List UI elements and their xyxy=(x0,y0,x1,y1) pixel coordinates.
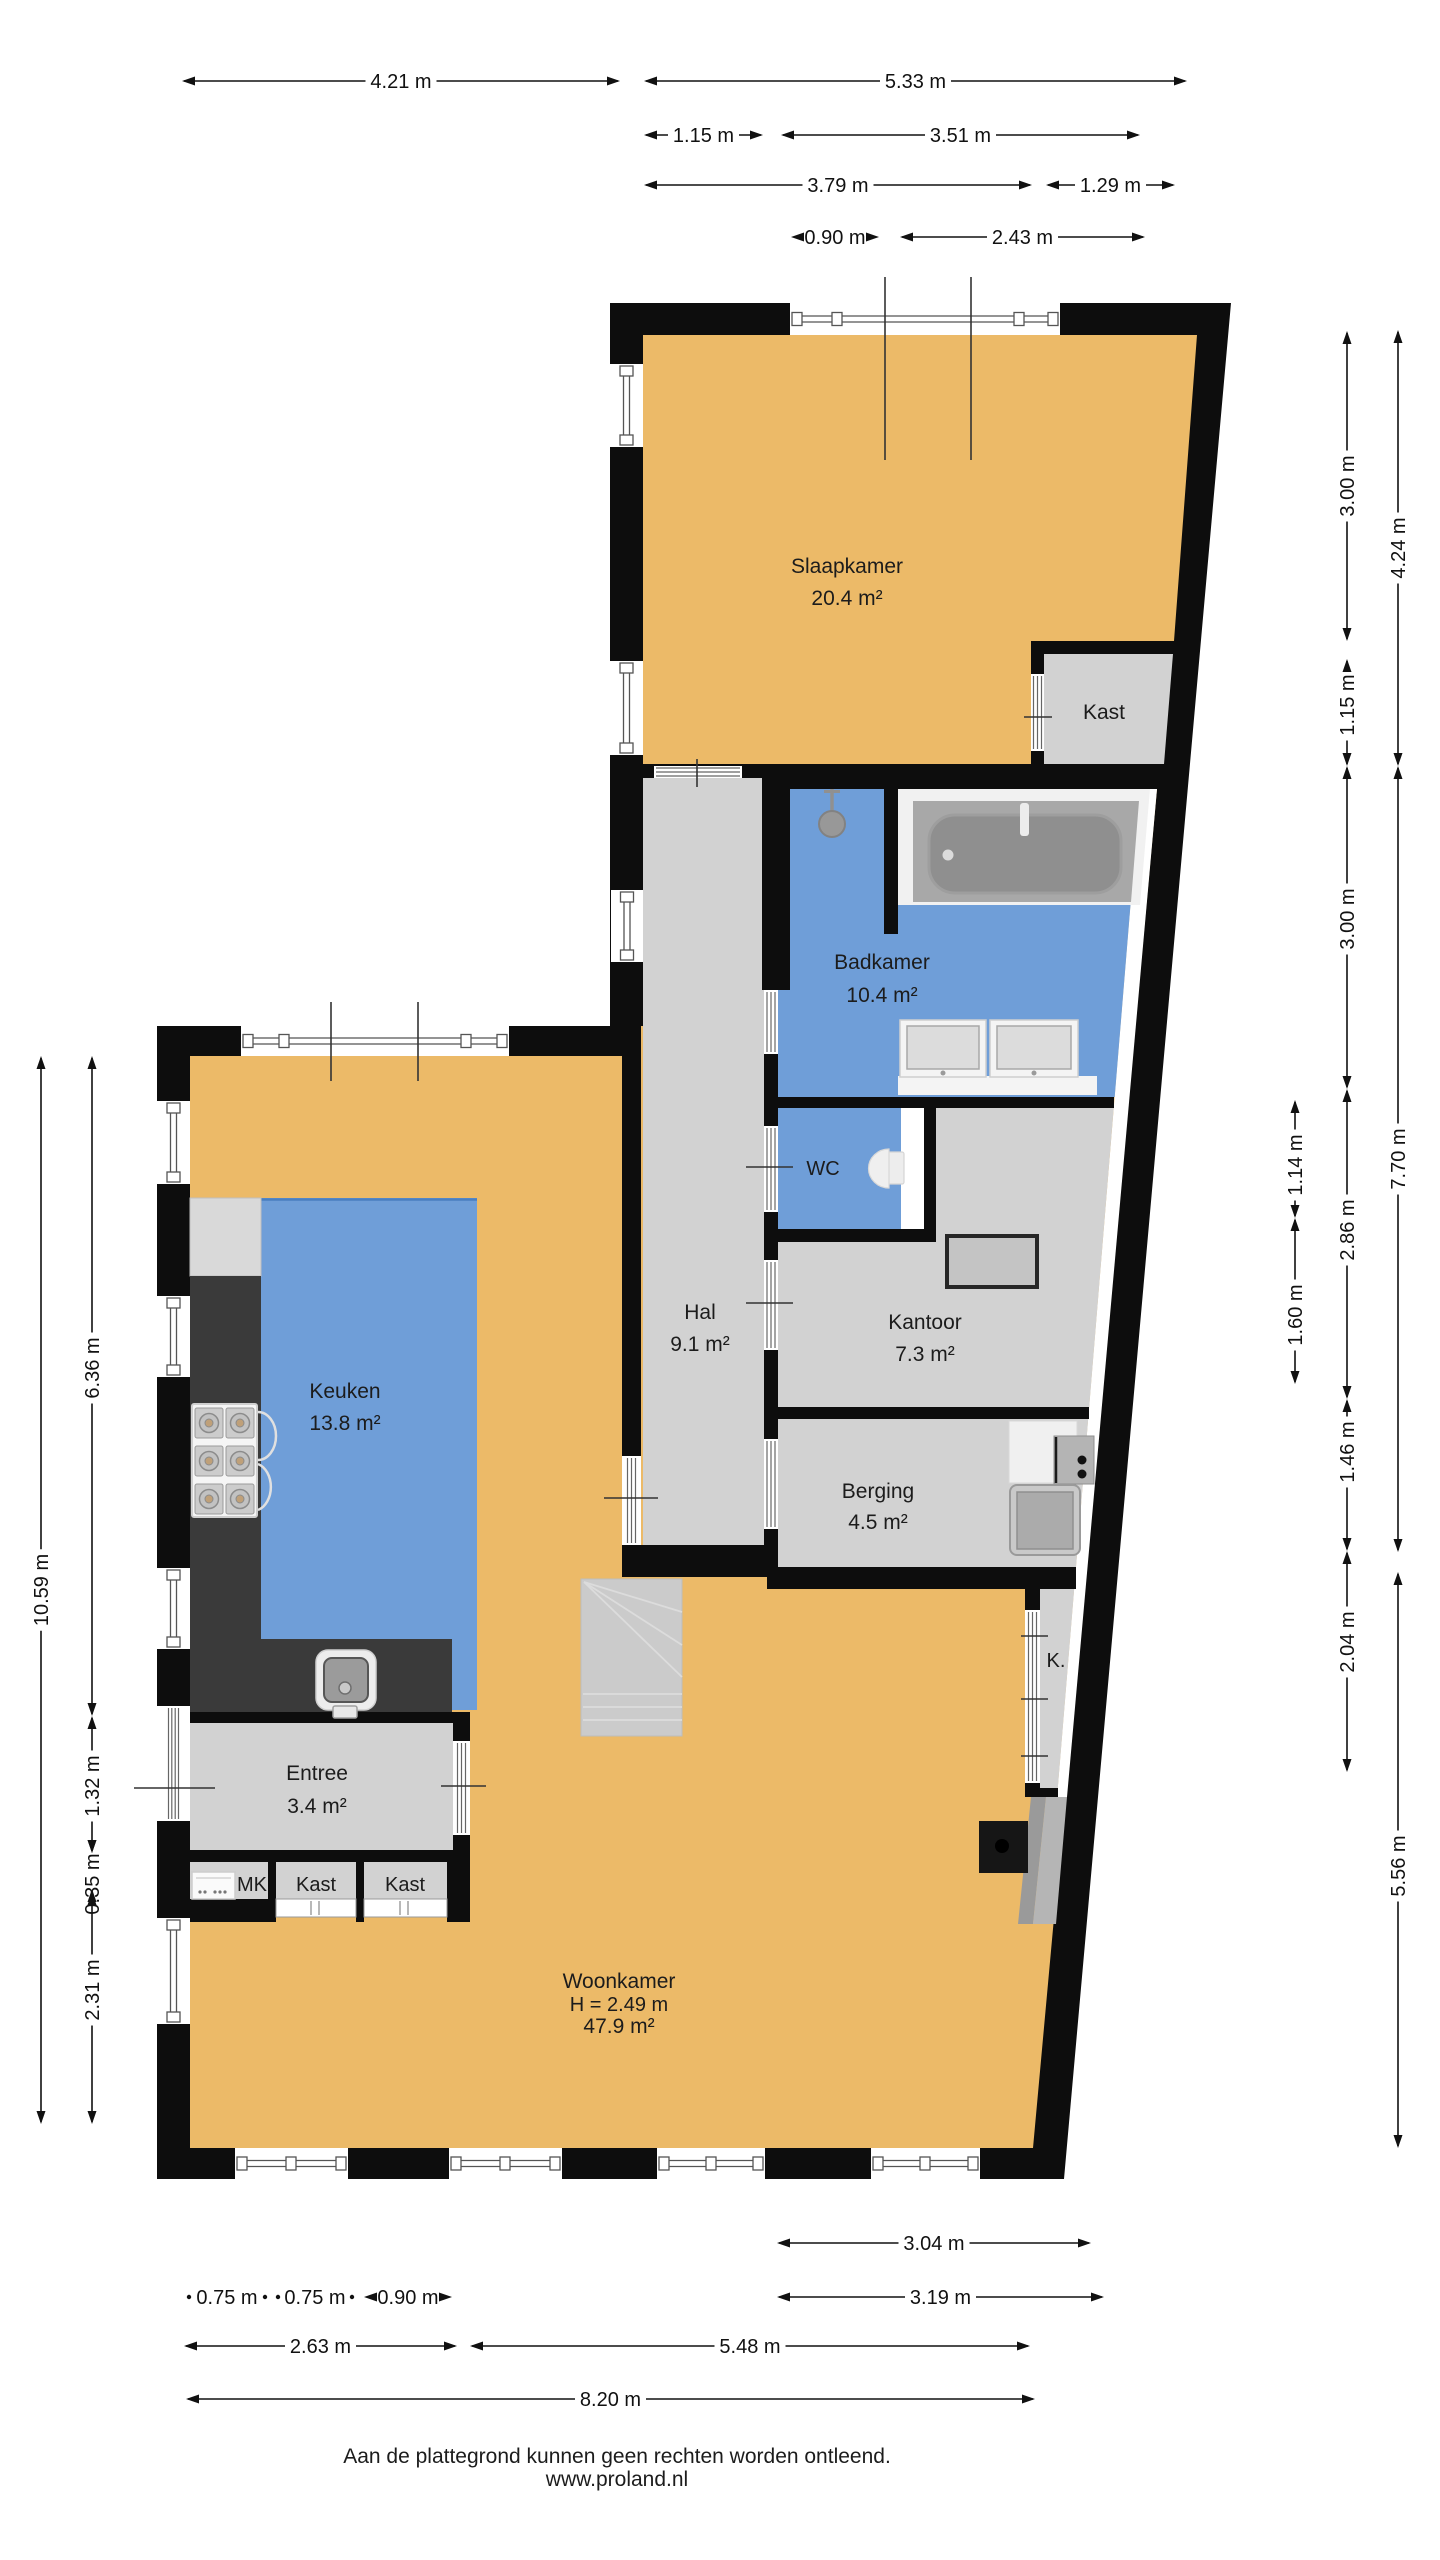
svg-text:20.4 m²: 20.4 m² xyxy=(811,587,882,610)
svg-text:3.04 m: 3.04 m xyxy=(903,2233,964,2255)
svg-text:Kast: Kast xyxy=(296,1874,336,1896)
svg-text:Slaapkamer: Slaapkamer xyxy=(791,555,903,578)
svg-text:5.56 m: 5.56 m xyxy=(1388,1835,1410,1896)
svg-text:4.21 m: 4.21 m xyxy=(370,71,431,93)
svg-text:3.00 m: 3.00 m xyxy=(1337,455,1359,516)
svg-text:5.33 m: 5.33 m xyxy=(885,71,946,93)
svg-text:7.70 m: 7.70 m xyxy=(1388,1128,1410,1189)
svg-text:Aan de plattegrond kunnen geen: Aan de plattegrond kunnen geen rechten w… xyxy=(343,2445,891,2468)
svg-text:2.43 m: 2.43 m xyxy=(992,227,1053,249)
svg-text:Badkamer: Badkamer xyxy=(834,951,930,974)
svg-text:H = 2.49 m: H = 2.49 m xyxy=(570,1994,668,2016)
svg-text:1.14 m: 1.14 m xyxy=(1285,1134,1307,1195)
svg-text:1.60 m: 1.60 m xyxy=(1285,1284,1307,1345)
svg-text:5.48 m: 5.48 m xyxy=(719,2336,780,2358)
svg-text:Kast: Kast xyxy=(385,1874,425,1896)
svg-text:10.59 m: 10.59 m xyxy=(31,1554,53,1626)
svg-text:0.75 m: 0.75 m xyxy=(284,2287,345,2309)
svg-text:MK: MK xyxy=(237,1874,268,1896)
svg-text:0.90 m: 0.90 m xyxy=(377,2287,438,2309)
svg-text:2.63 m: 2.63 m xyxy=(290,2336,351,2358)
svg-text:Berging: Berging xyxy=(842,1480,914,1503)
svg-text:3.51 m: 3.51 m xyxy=(930,125,991,147)
svg-text:K.: K. xyxy=(1047,1650,1066,1672)
svg-text:Keuken: Keuken xyxy=(309,1380,380,1403)
svg-text:6.36 m: 6.36 m xyxy=(82,1337,104,1398)
svg-text:1.32 m: 1.32 m xyxy=(82,1755,104,1816)
svg-text:Hal: Hal xyxy=(684,1301,716,1324)
svg-text:1.15 m: 1.15 m xyxy=(673,125,734,147)
svg-text:www.proland.nl: www.proland.nl xyxy=(545,2468,688,2491)
svg-text:10.4 m²: 10.4 m² xyxy=(846,984,917,1007)
svg-text:3.19 m: 3.19 m xyxy=(910,2287,971,2309)
svg-text:2.31 m: 2.31 m xyxy=(82,1959,104,2020)
svg-text:1.29 m: 1.29 m xyxy=(1080,175,1141,197)
svg-text:0.35 m: 0.35 m xyxy=(82,1853,104,1914)
svg-text:7.3 m²: 7.3 m² xyxy=(895,1343,955,1366)
svg-text:Woonkamer: Woonkamer xyxy=(563,1970,676,1993)
svg-text:Entree: Entree xyxy=(286,1762,348,1785)
svg-text:0.75 m: 0.75 m xyxy=(196,2287,257,2309)
svg-text:3.00 m: 3.00 m xyxy=(1337,888,1359,949)
svg-text:3.4 m²: 3.4 m² xyxy=(287,1795,347,1818)
svg-text:4.24 m: 4.24 m xyxy=(1388,517,1410,578)
svg-text:3.79 m: 3.79 m xyxy=(807,175,868,197)
svg-text:WC: WC xyxy=(806,1158,839,1180)
svg-text:9.1 m²: 9.1 m² xyxy=(670,1333,730,1356)
svg-text:Kast: Kast xyxy=(1083,701,1125,724)
svg-text:47.9 m²: 47.9 m² xyxy=(583,2015,654,2038)
svg-text:8.20 m: 8.20 m xyxy=(580,2389,641,2411)
svg-text:1.46 m: 1.46 m xyxy=(1337,1421,1359,1482)
svg-text:13.8 m²: 13.8 m² xyxy=(309,1412,380,1435)
svg-text:Kantoor: Kantoor xyxy=(888,1311,962,1334)
svg-text:2.86 m: 2.86 m xyxy=(1337,1199,1359,1260)
svg-text:0.90 m: 0.90 m xyxy=(804,227,865,249)
svg-text:1.15 m: 1.15 m xyxy=(1337,674,1359,735)
svg-text:4.5 m²: 4.5 m² xyxy=(848,1511,908,1534)
svg-text:2.04 m: 2.04 m xyxy=(1337,1611,1359,1672)
